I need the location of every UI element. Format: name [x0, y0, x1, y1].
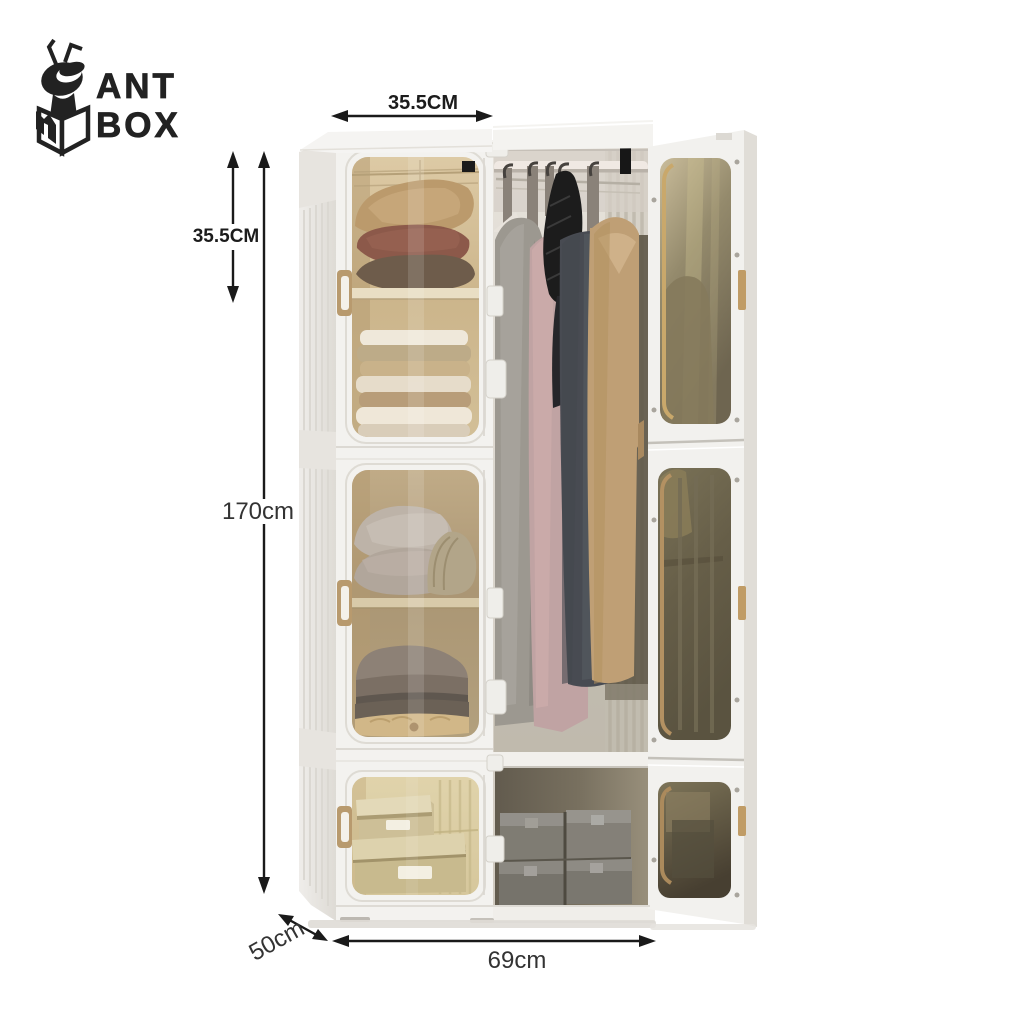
- svg-text:ANT: ANT: [96, 67, 177, 106]
- svg-text:35.5CM: 35.5CM: [193, 226, 260, 247]
- svg-text:170cm: 170cm: [222, 498, 294, 525]
- svg-text:35.5CM: 35.5CM: [388, 92, 458, 114]
- svg-text:69cm: 69cm: [488, 947, 547, 974]
- svg-text:BOX: BOX: [96, 106, 181, 145]
